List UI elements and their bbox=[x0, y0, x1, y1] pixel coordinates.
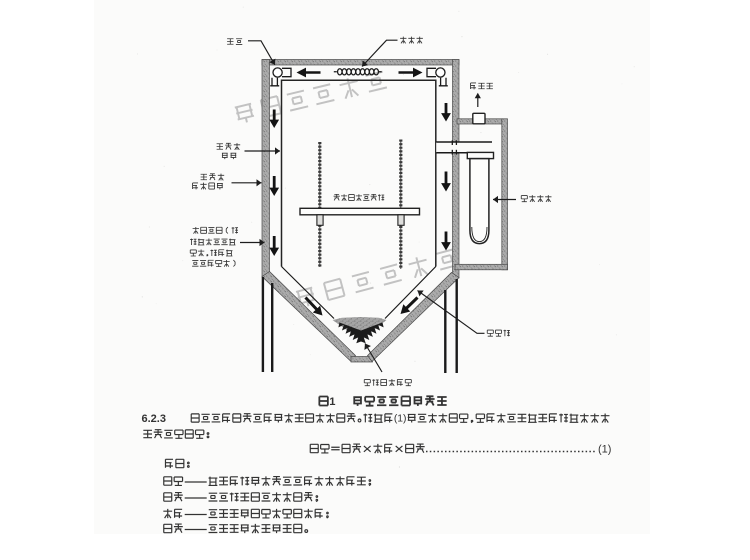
svg-text:1: 1 bbox=[329, 396, 335, 408]
svg-text:(1): (1) bbox=[394, 414, 407, 425]
svg-text:(1): (1) bbox=[598, 444, 611, 456]
svg-text:6.2.3: 6.2.3 bbox=[142, 413, 166, 425]
